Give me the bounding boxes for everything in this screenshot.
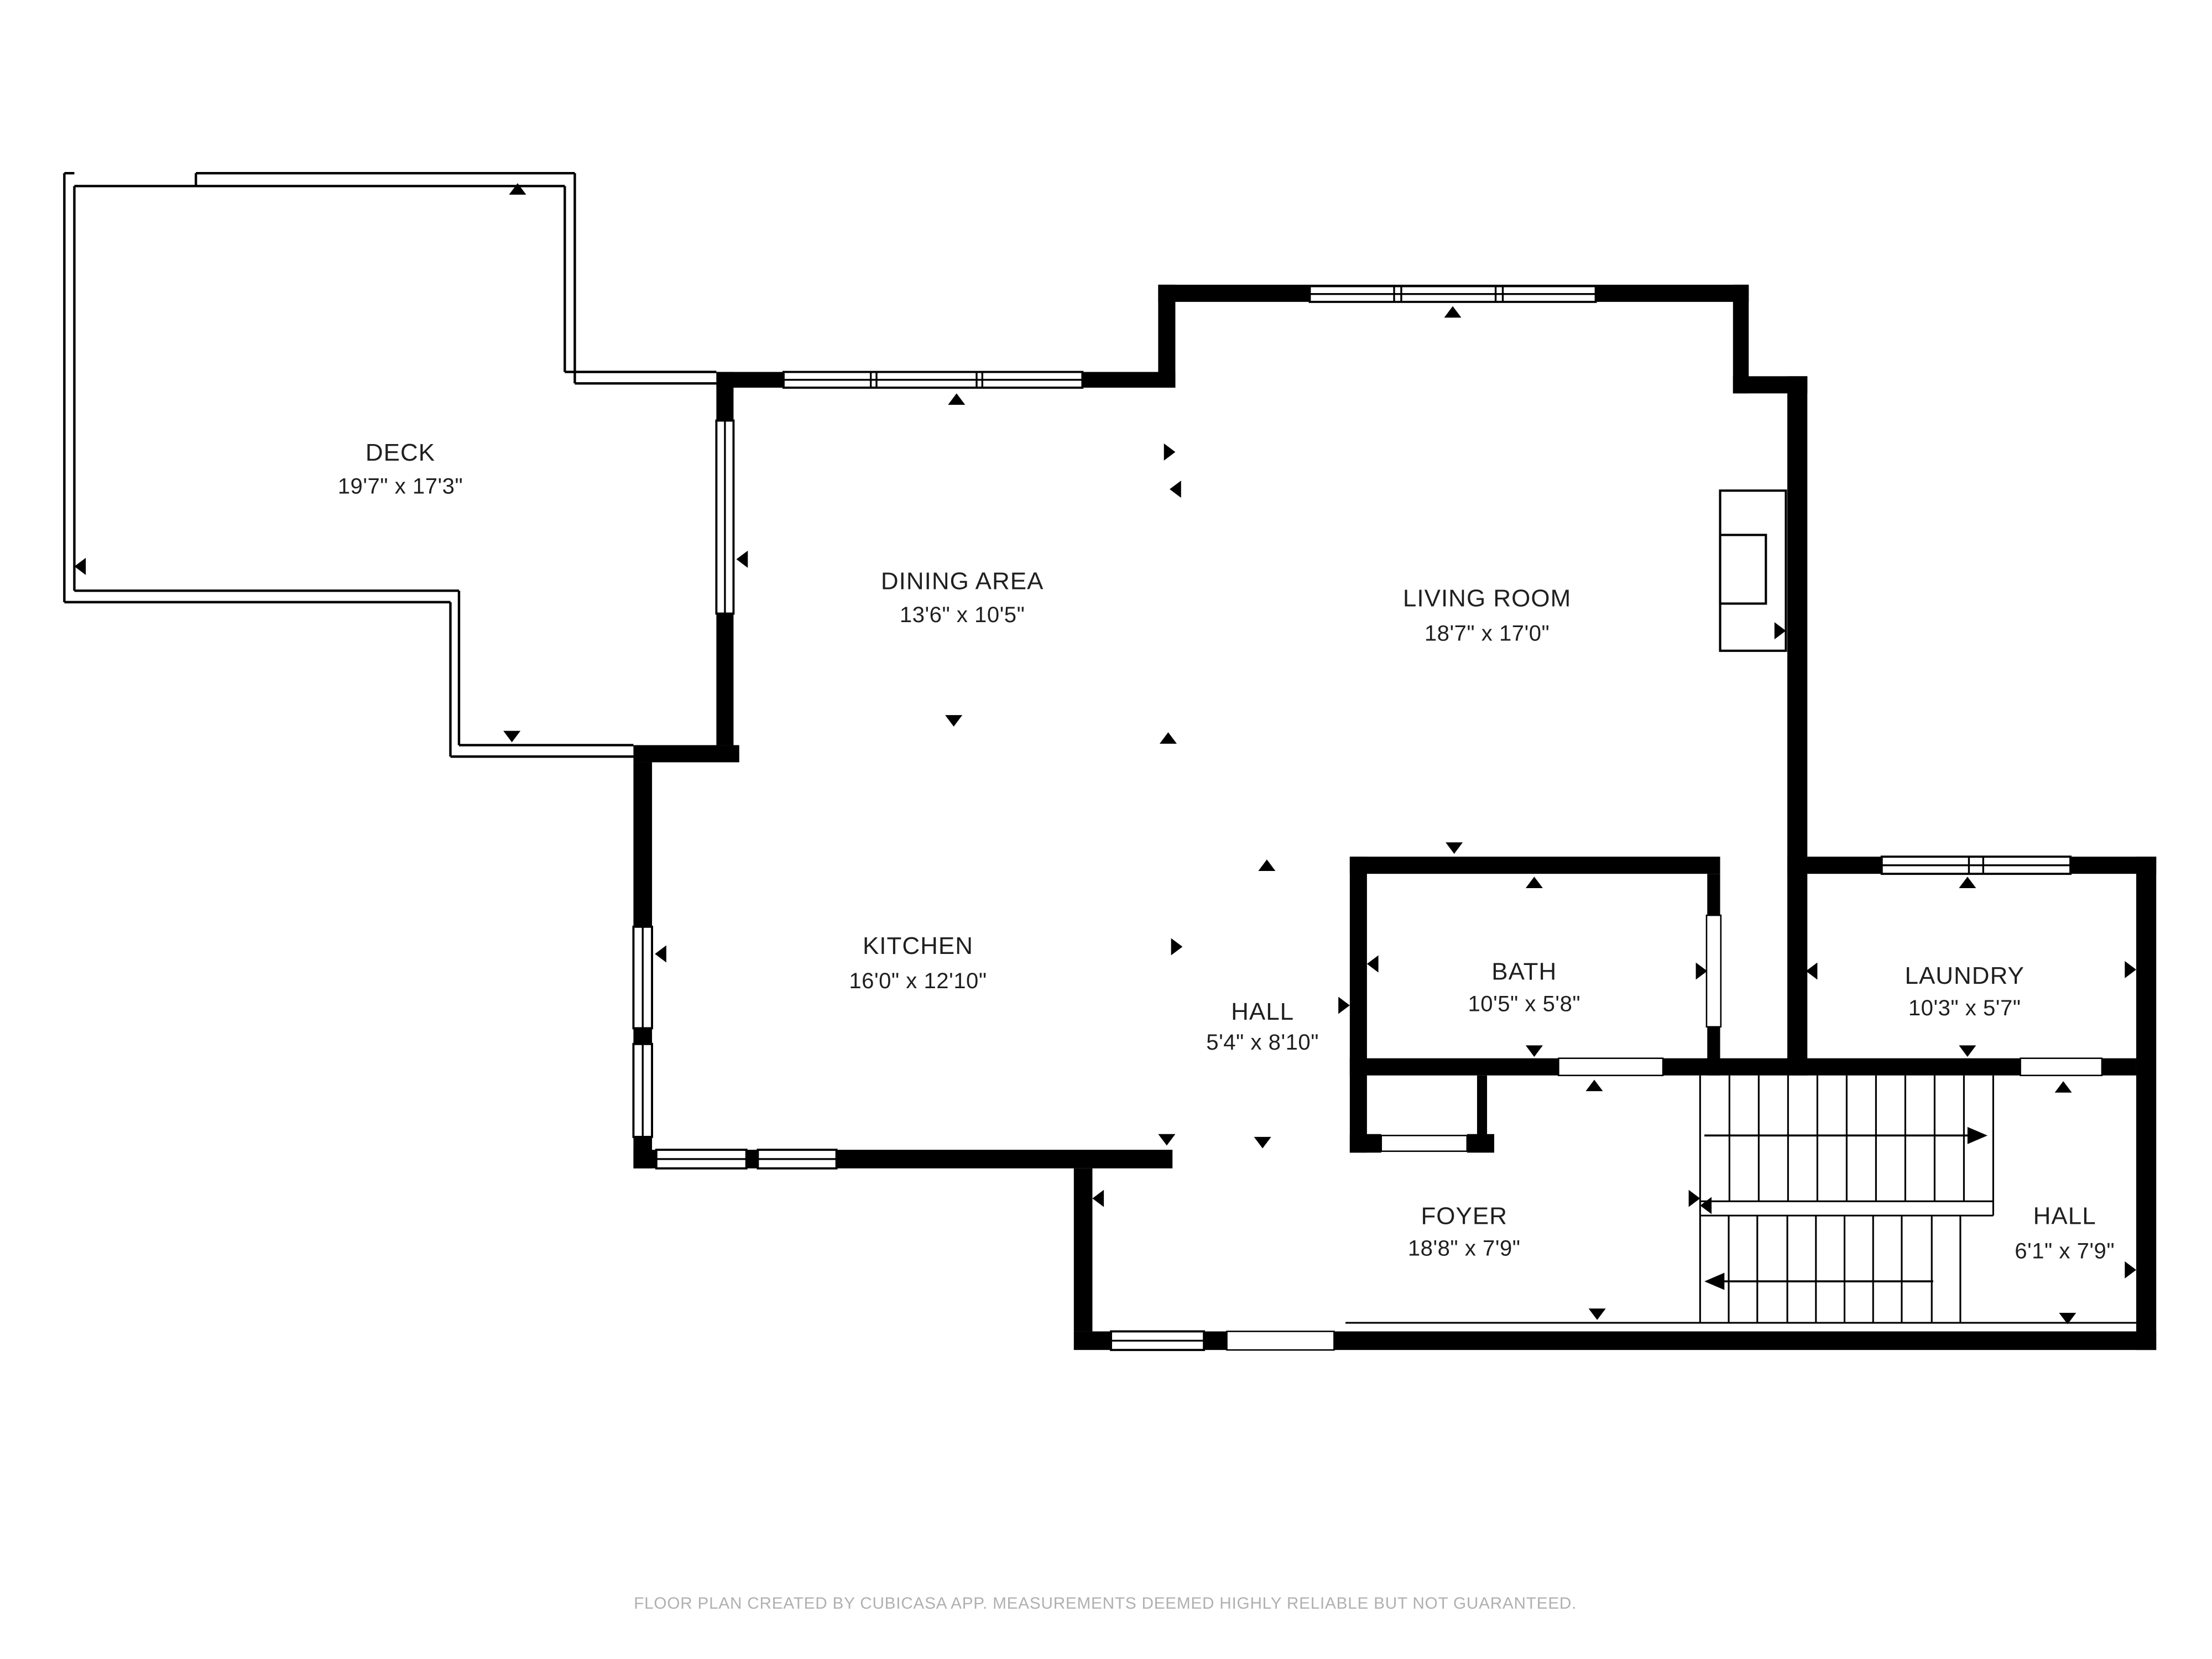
arrow-up-icon	[1526, 877, 1543, 888]
wall-right-exterior	[2136, 857, 2156, 1350]
window-kitchen-bottom-1	[656, 1150, 747, 1168]
window-living-top	[1310, 286, 1595, 301]
wall-living-right-main	[1787, 376, 1807, 1075]
room-label-deck: DECK 19'7" x 17'3"	[338, 439, 463, 498]
arrow-left-icon	[1806, 962, 1818, 979]
wall-stairs-top	[1350, 1058, 2136, 1076]
arrow-left-icon	[1092, 1190, 1104, 1207]
arrow-left-icon	[1700, 1197, 1712, 1214]
wall-bath-left	[1350, 857, 1367, 1152]
window-kitchen-bottom-2	[758, 1150, 836, 1168]
room-dimensions: 18'7" x 17'0"	[1425, 622, 1550, 646]
room-dimensions: 16'0" x 12'10"	[849, 969, 987, 993]
wall-vestibule-right-stub	[1477, 1076, 1487, 1140]
floor-plan: DECK 19'7" x 17'3" DINING AREA 13'6" x 1…	[0, 0, 2212, 1659]
arrow-up-icon	[1444, 306, 1462, 318]
arrow-right-icon	[1689, 1190, 1700, 1207]
wall-kitchen-left-mullion	[633, 1028, 652, 1044]
room-label-foyer: FOYER 18'8" x 7'9"	[1408, 1203, 1521, 1261]
room-name: DINING AREA	[881, 568, 1044, 595]
room-dimensions: 10'5" x 5'8"	[1468, 992, 1580, 1016]
arrow-down-icon	[945, 715, 962, 727]
arrow-up-icon	[1160, 732, 1177, 744]
arrow-down-icon	[503, 731, 520, 743]
door-vestibule	[1381, 1135, 1467, 1151]
arrow-up-icon	[2055, 1081, 2072, 1093]
room-label-kitchen: KITCHEN 16'0" x 12'10"	[849, 932, 987, 993]
window-laundry-top	[1882, 857, 2070, 874]
wall-dining-living-step	[1158, 285, 1175, 388]
wall-kitchen-corner	[633, 745, 739, 762]
door-entry	[1227, 1332, 1334, 1350]
wall-foyer-left	[1074, 1168, 1093, 1332]
wall-vestibule-left-cap	[1350, 1134, 1381, 1153]
wall-vestibule-right-cap	[1467, 1134, 1494, 1153]
door-bath-side	[1707, 915, 1721, 1027]
room-name: LAUNDRY	[1905, 962, 2024, 989]
room-name: BATH	[1491, 958, 1557, 985]
room-label-laundry: LAUNDRY 10'3" x 5'7"	[1905, 962, 2024, 1020]
room-label-hall-upper: HALL 5'4" x 8'10"	[1206, 998, 1319, 1055]
arrow-right-icon	[1696, 962, 1708, 979]
arrow-right-icon	[1171, 938, 1183, 956]
arrow-down-icon	[1254, 1137, 1271, 1149]
window-kitchen-left-1	[633, 927, 652, 1029]
room-dimensions: 13'6" x 10'5"	[900, 603, 1025, 627]
room-dimensions: 5'4" x 8'10"	[1206, 1030, 1319, 1055]
arrow-left-icon	[737, 551, 748, 568]
room-name: FOYER	[1421, 1203, 1507, 1230]
wall-bath-top	[1350, 857, 1720, 874]
door-bath-bottom	[1558, 1058, 1663, 1076]
footer-disclaimer: FLOOR PLAN CREATED BY CUBICASA APP. MEAS…	[634, 1594, 1577, 1613]
wall-kitchen-left-upper	[633, 762, 652, 926]
staircase	[1345, 1076, 2136, 1323]
arrow-left-icon	[1367, 956, 1379, 973]
room-label-bath: BATH 10'5" x 5'8"	[1468, 958, 1580, 1016]
arrow-up-icon	[948, 393, 965, 405]
fireplace-firebox	[1720, 535, 1766, 603]
arrow-right-icon	[1338, 997, 1350, 1014]
wall-dining-left	[716, 614, 733, 745]
room-name: KITCHEN	[863, 932, 973, 959]
room-name: DECK	[366, 439, 435, 466]
room-label-living: LIVING ROOM 18'7" x 17'0"	[1403, 585, 1571, 646]
room-dimensions: 19'7" x 17'3"	[338, 474, 463, 498]
arrow-down-icon	[1589, 1308, 1606, 1320]
windows	[633, 286, 2070, 1350]
window-foyer-bottom	[1111, 1332, 1204, 1350]
arrow-left-icon	[74, 558, 86, 575]
arrow-right-icon	[2125, 1261, 2136, 1279]
door-stair-hall	[2021, 1058, 2102, 1076]
room-name: LIVING ROOM	[1403, 585, 1571, 612]
room-name: HALL	[1231, 998, 1294, 1025]
arrow-down-icon	[1959, 1045, 1976, 1057]
wall-deck-corner	[716, 372, 733, 421]
room-labels: DECK 19'7" x 17'3" DINING AREA 13'6" x 1…	[338, 439, 2115, 1264]
arrow-left-icon	[655, 945, 666, 962]
arrow-up-icon	[1258, 859, 1275, 871]
arrow-left-icon	[1170, 481, 1181, 498]
arrow-up-icon	[1585, 1079, 1603, 1091]
arrow-right-icon	[2125, 961, 2136, 978]
arrow-up-icon	[1959, 877, 1976, 888]
room-dimensions: 10'3" x 5'7"	[1908, 996, 2021, 1020]
arrow-down-icon	[1526, 1045, 1543, 1057]
room-dimensions: 6'1" x 7'9"	[2015, 1239, 2115, 1264]
stairs-down-arrow	[1704, 1273, 1933, 1290]
arrow-down-icon	[1158, 1134, 1175, 1146]
walls	[633, 285, 2156, 1350]
room-label-dining: DINING AREA 13'6" x 10'5"	[881, 568, 1044, 627]
room-label-hall-lower: HALL 6'1" x 7'9"	[2015, 1203, 2115, 1264]
window-dining-left	[716, 421, 733, 614]
arrow-right-icon	[1164, 444, 1176, 461]
window-kitchen-left-2	[633, 1044, 652, 1137]
room-name: HALL	[2033, 1203, 2096, 1230]
window-dining-top	[784, 372, 1082, 388]
arrow-down-icon	[1446, 842, 1463, 854]
room-dimensions: 18'8" x 7'9"	[1408, 1237, 1521, 1261]
